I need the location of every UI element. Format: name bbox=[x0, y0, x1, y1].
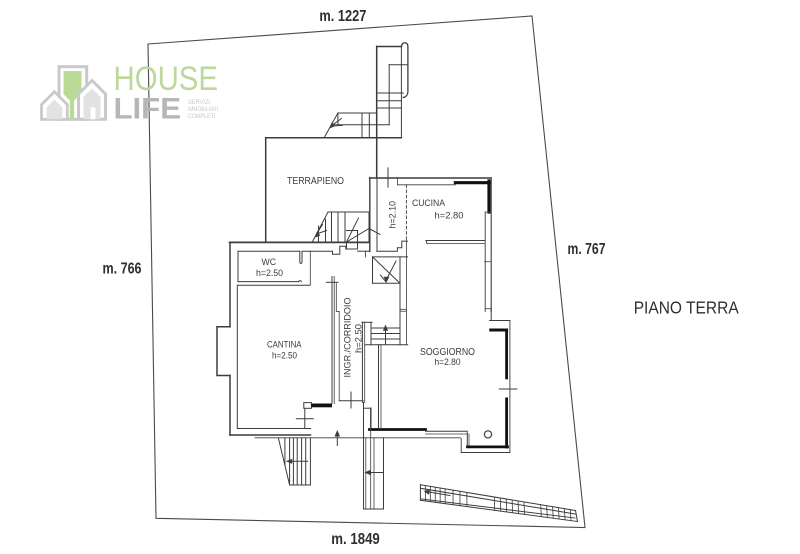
svg-text:PIANO TERRA: PIANO TERRA bbox=[634, 298, 739, 318]
svg-text:INGR./CORRIDOIO: INGR./CORRIDOIO bbox=[343, 297, 353, 377]
svg-text:IMMOBILIARI: IMMOBILIARI bbox=[188, 106, 218, 113]
svg-text:h=2.80: h=2.80 bbox=[435, 211, 464, 221]
svg-text:CANTINA: CANTINA bbox=[267, 340, 302, 351]
svg-text:SERVIZI: SERVIZI bbox=[188, 99, 210, 106]
svg-text:LIFE: LIFE bbox=[114, 93, 182, 126]
svg-text:WC: WC bbox=[262, 257, 277, 268]
svg-text:COMPLETI: COMPLETI bbox=[188, 113, 216, 120]
svg-text:TERRAPIENO: TERRAPIENO bbox=[287, 176, 344, 187]
svg-text:h=2.50: h=2.50 bbox=[354, 324, 364, 353]
svg-text:h=2.10: h=2.10 bbox=[388, 201, 398, 229]
svg-text:m. 766: m. 766 bbox=[103, 261, 142, 278]
svg-text:h=2.50: h=2.50 bbox=[272, 351, 297, 361]
svg-text:m. 767: m. 767 bbox=[568, 241, 606, 258]
svg-text:CUCINA: CUCINA bbox=[412, 198, 446, 208]
svg-text:h=2.50: h=2.50 bbox=[256, 268, 283, 278]
svg-text:m. 1227: m. 1227 bbox=[319, 8, 366, 25]
svg-text:m. 1849: m. 1849 bbox=[331, 531, 380, 548]
svg-text:h=2.80: h=2.80 bbox=[435, 357, 461, 367]
